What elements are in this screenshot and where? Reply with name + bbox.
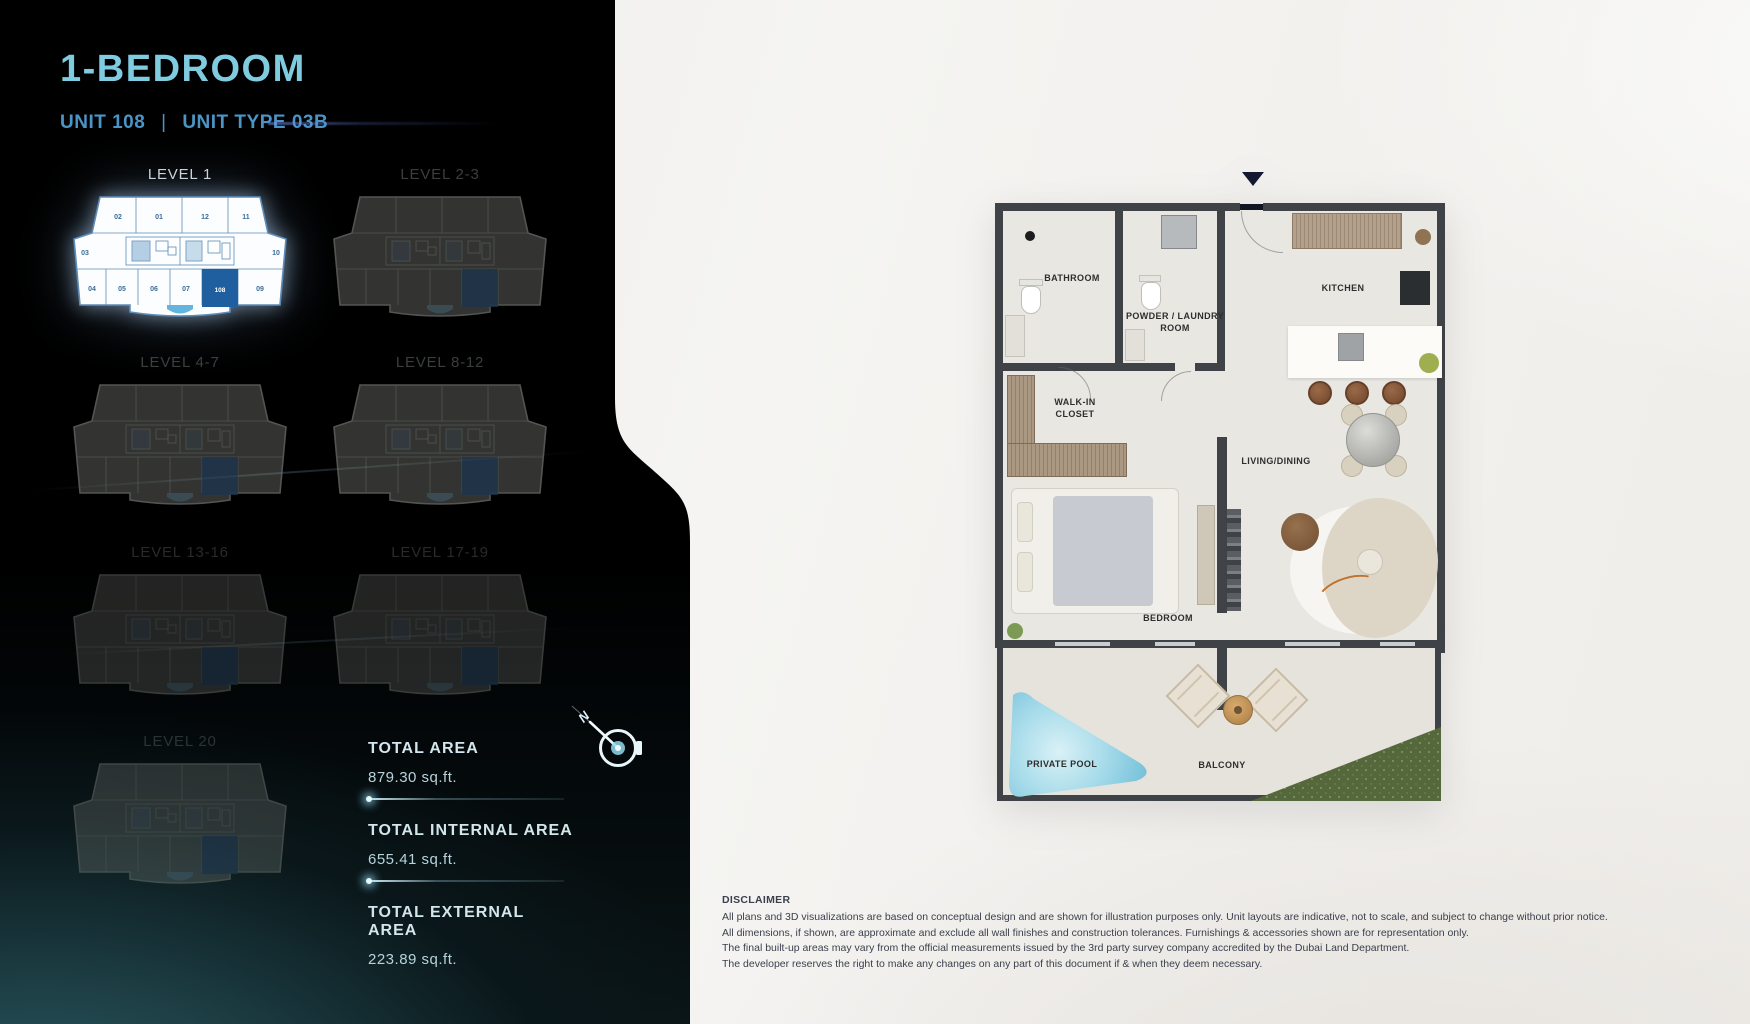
tv-console xyxy=(1197,505,1215,605)
room-label-powder-laundry: POWDER / LAUNDRY ROOM xyxy=(1125,310,1225,334)
svg-text:03: 03 xyxy=(81,250,89,257)
room-label-kitchen: KITCHEN xyxy=(1322,282,1365,294)
disclaimer-line: All plans and 3D visualizations are base… xyxy=(722,910,1652,926)
washing-machine xyxy=(1161,215,1197,249)
svg-text:01: 01 xyxy=(155,214,163,221)
level-2-3-floorplate xyxy=(330,189,550,321)
level-label: LEVEL 13-16 xyxy=(70,544,290,561)
level-4-7-floorplate xyxy=(70,377,290,509)
bar-stool xyxy=(1308,381,1332,405)
page: 1-BEDROOM UNIT 108 | UNIT TYPE 03B LEVEL… xyxy=(0,0,1750,1024)
level-selector-level-4-7[interactable]: LEVEL 4-7 xyxy=(70,354,290,509)
kitchen-sink xyxy=(1338,333,1364,361)
room-label-walk-in-closet: WALK-IN CLOSET xyxy=(1045,396,1105,420)
wall xyxy=(995,203,1003,648)
balcony-table xyxy=(1223,695,1253,725)
svg-text:12: 12 xyxy=(201,214,209,221)
toilet xyxy=(1021,286,1041,314)
level-8-12-floorplate xyxy=(330,377,550,509)
level-selector-level-1[interactable]: LEVEL 1 02 01 12 11 03 10 04 05 06 07 10… xyxy=(70,166,290,321)
bathroom-vanity xyxy=(1005,315,1025,357)
level-label: LEVEL 17-19 xyxy=(330,544,550,561)
divider xyxy=(368,880,564,882)
total-external-area-block: TOTAL EXTERNAL AREA 223.89 sq.ft. xyxy=(368,904,578,968)
level-label: LEVEL 1 xyxy=(70,166,290,183)
kitchen-plant xyxy=(1415,229,1431,245)
coffee-table xyxy=(1357,549,1383,575)
unit-number: UNIT 108 xyxy=(60,112,145,133)
svg-text:04: 04 xyxy=(88,286,96,293)
toilet-tank xyxy=(1019,279,1043,286)
level-17-19-floorplate xyxy=(330,567,550,699)
level-20-floorplate xyxy=(70,756,290,888)
wall xyxy=(1123,363,1175,371)
area-stats: TOTAL AREA 879.30 sq.ft. TOTAL INTERNAL … xyxy=(368,740,578,980)
window xyxy=(1155,642,1195,646)
shower-head xyxy=(1025,231,1035,241)
room-label-bathroom: BATHROOM xyxy=(1044,272,1100,284)
separator: | xyxy=(161,112,166,133)
level-selector-level-2-3[interactable]: LEVEL 2-3 xyxy=(330,166,550,321)
disclaimer-line: The developer reserves the right to make… xyxy=(722,957,1652,973)
bar-stool xyxy=(1382,381,1406,405)
total-external-area-value: 223.89 sq.ft. xyxy=(368,951,578,968)
svg-text:09: 09 xyxy=(256,286,264,293)
level-1-floorplate: 02 01 12 11 03 10 04 05 06 07 108 09 xyxy=(70,189,290,321)
wall xyxy=(1195,363,1225,371)
wall xyxy=(1263,203,1445,211)
level-label: LEVEL 2-3 xyxy=(330,166,550,183)
level-label: LEVEL 20 xyxy=(70,733,290,750)
room-label-balcony: BALCONY xyxy=(1198,759,1245,771)
kitchen-appliance xyxy=(1400,271,1430,305)
svg-text:06: 06 xyxy=(150,286,158,293)
svg-text:05: 05 xyxy=(118,286,126,293)
kitchen-counter xyxy=(1292,213,1402,249)
total-internal-area-block: TOTAL INTERNAL AREA 655.41 sq.ft. xyxy=(368,822,578,882)
total-internal-area-label: TOTAL INTERNAL AREA xyxy=(368,822,578,840)
wall xyxy=(1115,203,1123,371)
disclaimer-line: The final built-up areas may vary from t… xyxy=(722,941,1652,957)
level-selector-level-8-12[interactable]: LEVEL 8-12 xyxy=(330,354,550,509)
toilet-tank xyxy=(1139,275,1161,282)
divider xyxy=(368,798,564,800)
kitchen-island xyxy=(1288,326,1442,378)
swoosh-graphic xyxy=(268,122,498,125)
wall xyxy=(1217,203,1225,371)
wall xyxy=(1217,437,1227,613)
compass-north-icon: N xyxy=(556,690,672,806)
level-13-16-floorplate xyxy=(70,567,290,699)
bed xyxy=(1011,488,1179,614)
window xyxy=(1380,642,1415,646)
disclaimer-line: All dimensions, if shown, are approximat… xyxy=(722,926,1652,942)
total-area-value: 879.30 sq.ft. xyxy=(368,769,578,786)
armchair xyxy=(1281,513,1319,551)
unit-floorplan: BATHROOM POWDER / LAUNDRY ROOM KITCHEN W… xyxy=(995,203,1445,813)
room-label-private-pool: PRIVATE POOL xyxy=(1027,758,1097,770)
svg-text:02: 02 xyxy=(114,214,122,221)
window xyxy=(1285,642,1340,646)
left-panel: 1-BEDROOM UNIT 108 | UNIT TYPE 03B LEVEL… xyxy=(0,0,700,1024)
entrance-threshold xyxy=(1240,204,1263,210)
balcony-wall xyxy=(1435,648,1441,740)
svg-text:11: 11 xyxy=(242,214,250,221)
bar-stool xyxy=(1345,381,1369,405)
total-internal-area-value: 655.41 sq.ft. xyxy=(368,851,578,868)
page-title: 1-BEDROOM xyxy=(60,48,306,91)
disclaimer: DISCLAIMER All plans and 3D visualizatio… xyxy=(722,894,1652,972)
wardrobe xyxy=(1007,443,1127,477)
entrance-marker-icon xyxy=(1242,172,1264,186)
svg-text:108: 108 xyxy=(215,287,226,294)
total-area-label: TOTAL AREA xyxy=(368,740,578,758)
level-label: LEVEL 4-7 xyxy=(70,354,290,371)
level-selector-level-20[interactable]: LEVEL 20 xyxy=(70,733,290,888)
level-selector-level-13-16[interactable]: LEVEL 13-16 xyxy=(70,544,290,699)
dining-table xyxy=(1346,413,1400,467)
level-label: LEVEL 8-12 xyxy=(330,354,550,371)
plant xyxy=(1007,623,1023,639)
total-external-area-label: TOTAL EXTERNAL AREA xyxy=(368,904,578,940)
room-label-living-dining: LIVING/DINING xyxy=(1241,455,1310,467)
balcony-wall xyxy=(997,648,1003,801)
level-selector-level-17-19[interactable]: LEVEL 17-19 xyxy=(330,544,550,699)
tv-feature-wall xyxy=(1227,509,1241,611)
room-label-bedroom: BEDROOM xyxy=(1143,612,1193,624)
svg-text:07: 07 xyxy=(182,286,190,293)
wall xyxy=(1437,203,1445,653)
svg-text:10: 10 xyxy=(272,250,280,257)
window xyxy=(1055,642,1110,646)
plant xyxy=(1419,353,1439,373)
disclaimer-title: DISCLAIMER xyxy=(722,894,1652,906)
toilet xyxy=(1141,282,1161,310)
total-area-block: TOTAL AREA 879.30 sq.ft. xyxy=(368,740,578,800)
